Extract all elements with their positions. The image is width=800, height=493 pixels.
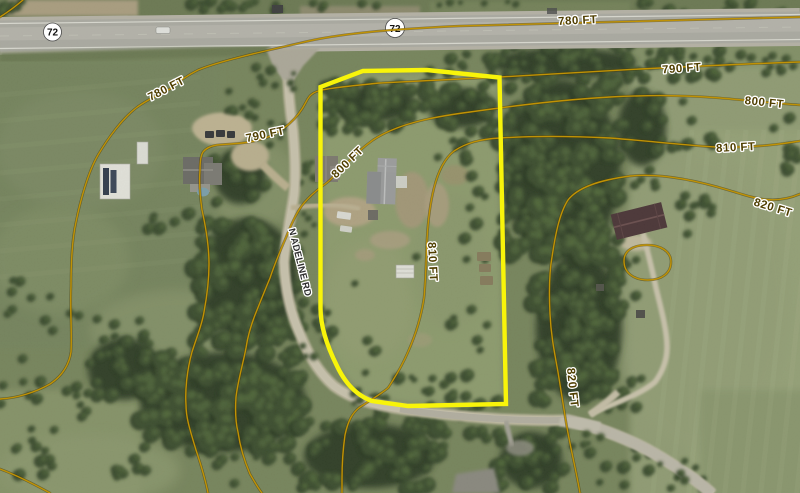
svg-text:72: 72 <box>47 28 59 39</box>
svg-text:810 FT: 810 FT <box>425 242 439 282</box>
svg-text:810 FT: 810 FT <box>716 141 756 155</box>
svg-text:780 FT: 780 FT <box>558 14 598 28</box>
